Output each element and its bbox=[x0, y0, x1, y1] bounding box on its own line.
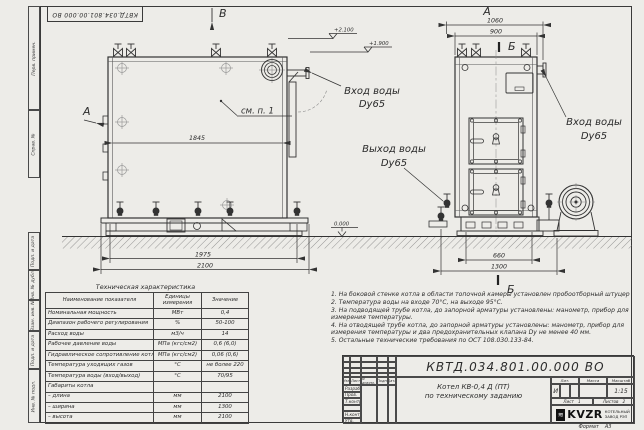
outlet-text: Выход воды bbox=[362, 144, 426, 155]
spec-unit bbox=[154, 382, 202, 392]
dim-1845-label: 1845 bbox=[189, 135, 205, 142]
inlet-dn: Dy65 bbox=[359, 99, 385, 110]
scale-header: Масштаб bbox=[607, 377, 635, 384]
lit-cell-3 bbox=[570, 384, 579, 398]
elev-plus2100: +2.100 bbox=[334, 28, 354, 34]
inlet-dn: Dy65 bbox=[581, 131, 607, 142]
outlet-label: Выход воды Dy65 bbox=[362, 144, 443, 201]
spec-value: 2100 bbox=[202, 392, 249, 402]
dim-1300-label: 1300 bbox=[491, 264, 507, 271]
spec-unit: м3/ч bbox=[154, 329, 202, 339]
revision-grid-line bbox=[343, 367, 396, 369]
drain-valve bbox=[227, 202, 234, 216]
spec-row: Температура уходящих газов°Сне более 220 bbox=[46, 361, 249, 371]
spec-col-header: Значение bbox=[202, 293, 249, 309]
sheets-value: 2 bbox=[622, 399, 625, 404]
spec-name: – ширина bbox=[46, 402, 154, 412]
dim-900-label: 900 bbox=[490, 29, 502, 36]
col-podp: Подп. bbox=[377, 377, 388, 385]
company-name: КОТЕЛЬНЫЙ ЗАВОД РЭП bbox=[605, 410, 630, 419]
spec-value: 1300 bbox=[202, 402, 249, 412]
spec-value: 0,4 bbox=[202, 309, 249, 319]
company-line2: ЗАВОД РЭП bbox=[605, 414, 628, 419]
inlet-text: Вход воды bbox=[344, 86, 400, 97]
top-valve bbox=[268, 44, 277, 57]
sheet-label: Лист bbox=[563, 399, 574, 404]
spec-name: Расход воды bbox=[46, 329, 154, 339]
note-4: 4. На отводящей трубе котла, до запорной… bbox=[331, 323, 634, 337]
spec-value: 0,6 (6,0) bbox=[202, 340, 249, 350]
spec-row: Температура воды (вход/выход)°С70/95 bbox=[46, 371, 249, 381]
spec-table-block: Техническая характеристика Наименование … bbox=[45, 283, 246, 424]
inlet-label-front: Вход воды Dy65 bbox=[546, 77, 622, 142]
spec-unit: мм bbox=[154, 402, 202, 412]
lower-door bbox=[469, 169, 525, 215]
note-1: 1. На боковой стенке котла в области топ… bbox=[331, 292, 634, 299]
technical-notes: 1. На боковой стенке котла в области топ… bbox=[331, 292, 634, 346]
spec-unit: °С bbox=[154, 361, 202, 371]
sig-data-col bbox=[388, 385, 396, 424]
spec-name: Рабочее давление воды bbox=[46, 340, 154, 350]
outlet-dn: Dy65 bbox=[381, 158, 407, 169]
spec-row: Номинальная мощностьМВт0,4 bbox=[46, 309, 249, 319]
burner-flange bbox=[259, 57, 285, 83]
water-inlet-pipe bbox=[287, 68, 327, 158]
kvzr-logo-text: KVZR bbox=[567, 408, 602, 421]
lit-value: И bbox=[551, 384, 560, 398]
ground-hatching bbox=[62, 237, 632, 249]
drawing-sheet: Перв. примен. Справ. № Подп. и дата Инв.… bbox=[0, 0, 644, 430]
dim-2100-label: 2100 bbox=[197, 263, 213, 270]
spec-unit: % bbox=[154, 319, 202, 329]
drain-valve bbox=[438, 207, 445, 221]
sheets-cell: Листов 2 bbox=[593, 398, 635, 405]
elevation-marks bbox=[288, 34, 392, 237]
inlet-text: Вход воды bbox=[566, 117, 622, 128]
note-2: 2. Температура воды на входе 70°С, на вы… bbox=[331, 300, 634, 307]
drain-valve bbox=[153, 202, 160, 216]
section-letter-b-top: Б bbox=[508, 40, 516, 53]
product-line1: Котел КВ-0,4 Д (ПТ) bbox=[437, 383, 510, 392]
spec-name: Диапазон рабочего регулирования bbox=[46, 319, 154, 329]
spec-name: Габариты котла bbox=[46, 382, 154, 392]
sig-utv: Утв. bbox=[343, 418, 361, 425]
spec-value: 50-100 bbox=[202, 319, 249, 329]
spec-table-title: Техническая характеристика bbox=[45, 283, 246, 292]
dim-1060-label: 1060 bbox=[487, 18, 503, 25]
format-strip: Формат А3 bbox=[545, 424, 644, 430]
spec-value: 0,06 (0,6) bbox=[202, 350, 249, 360]
view-letter-v: В bbox=[219, 7, 227, 20]
front-inlet-flange bbox=[537, 63, 546, 77]
col-data: Дата bbox=[388, 377, 396, 385]
revision-grid-line bbox=[343, 361, 396, 363]
view-letter-a-front: А bbox=[482, 5, 491, 18]
spec-value bbox=[202, 382, 249, 392]
top-valve bbox=[127, 44, 136, 57]
spec-value: не более 220 bbox=[202, 361, 249, 371]
note-3: 3. На подводящей трубе котла, до запорно… bbox=[331, 308, 634, 322]
drain-valve bbox=[294, 202, 301, 216]
spec-value: 2100 bbox=[202, 413, 249, 423]
drain-valve bbox=[117, 202, 124, 216]
format-value: А3 bbox=[605, 424, 612, 430]
spec-name: Номинальная мощность bbox=[46, 309, 154, 319]
see-note-callout: см. п. 1 bbox=[220, 100, 292, 117]
spec-name: Температура воды (вход/выход) bbox=[46, 371, 154, 381]
spec-name: Гидравлическое сопротивление котла bbox=[46, 350, 154, 360]
spec-unit: МПа (кгс/см2) bbox=[154, 340, 202, 350]
top-valve bbox=[114, 44, 123, 57]
sheet-cell: Лист 1 bbox=[551, 398, 593, 405]
spec-value: 14 bbox=[202, 329, 249, 339]
format-label: Формат bbox=[579, 424, 599, 430]
title-block: Изм Лист N докум. Подп. Дата Разраб. Про… bbox=[342, 355, 634, 423]
lit-cell-2 bbox=[560, 384, 569, 398]
inlet-label-side: Вход воды Dy65 bbox=[312, 73, 400, 110]
upper-door bbox=[469, 118, 525, 164]
spec-name: – длина bbox=[46, 392, 154, 402]
boiler-front-view bbox=[429, 44, 598, 236]
elev-zero: 0.000 bbox=[334, 222, 350, 228]
spec-row: – длинамм2100 bbox=[46, 392, 249, 402]
blower-fan bbox=[537, 183, 598, 236]
spec-row: Расход водым3/ч14 bbox=[46, 329, 249, 339]
spec-row: – ширинамм1300 bbox=[46, 402, 249, 412]
revision-grid-line bbox=[343, 372, 396, 374]
sheets-label: Листов bbox=[603, 399, 619, 404]
spec-unit: мм bbox=[154, 392, 202, 402]
access-panel bbox=[506, 73, 533, 93]
spec-value: 70/95 bbox=[202, 371, 249, 381]
base-frame-front bbox=[457, 217, 543, 236]
view-letter-a-side: А bbox=[82, 105, 91, 118]
spec-unit: МВт bbox=[154, 309, 202, 319]
dim-660-label: 660 bbox=[493, 253, 505, 260]
note-5: 5. Остальные технические требования по О… bbox=[331, 338, 634, 345]
doc-number: КВТД.034.801.00.000 ВО bbox=[396, 356, 635, 377]
spec-name: Температура уходящих газов bbox=[46, 361, 154, 371]
see-note-label: см. п. 1 bbox=[241, 107, 274, 117]
spec-row: – высотамм2100 bbox=[46, 413, 249, 423]
col-izm: Изм bbox=[343, 377, 350, 385]
scale-value: 1:15 bbox=[607, 384, 635, 398]
boiler-side-view bbox=[101, 44, 327, 236]
dim-1975-label: 1975 bbox=[195, 252, 211, 259]
spec-name: – высота bbox=[46, 413, 154, 423]
spec-row: Рабочее давление водыМПа (кгс/см2)0,6 (6… bbox=[46, 340, 249, 350]
top-valve bbox=[212, 44, 221, 57]
spec-unit: МПа (кгс/см2) bbox=[154, 350, 202, 360]
col-ndokum: N докум. bbox=[361, 377, 377, 385]
spec-unit: °С bbox=[154, 371, 202, 381]
spec-unit: мм bbox=[154, 413, 202, 423]
spec-row: Диапазон рабочего регулирования%50-100 bbox=[46, 319, 249, 329]
mass-header: Масса bbox=[579, 377, 607, 384]
spec-row: Гидравлическое сопротивление котлаМПа (к… bbox=[46, 350, 249, 360]
spec-col-header: Единицы измерения bbox=[154, 293, 202, 309]
product-name: Котел КВ-0,4 Д (ПТ) по техническому зада… bbox=[396, 377, 551, 424]
drain-valve bbox=[444, 194, 451, 208]
elev-plus1900: +1.900 bbox=[369, 41, 389, 47]
product-line2: по техническому заданию bbox=[425, 392, 522, 401]
drain-valve bbox=[546, 194, 553, 208]
drain-valve bbox=[195, 202, 202, 216]
company-cell: ≋ KVZR КОТЕЛЬНЫЙ ЗАВОД РЭП bbox=[551, 405, 635, 424]
lit-header: Лит. bbox=[551, 377, 579, 384]
sheet-value: 1 bbox=[578, 399, 581, 404]
sig-name-col bbox=[361, 385, 377, 424]
base-frame-side bbox=[101, 218, 308, 236]
spec-row: Габариты котла bbox=[46, 382, 249, 392]
spec-col-header: Наименование показателя bbox=[46, 293, 154, 309]
mass-value bbox=[579, 384, 607, 398]
sig-podp-col bbox=[377, 385, 388, 424]
col-list: Лист bbox=[350, 377, 361, 385]
spec-table: Наименование показателя Единицы измерени… bbox=[45, 292, 249, 424]
kvzr-logo-icon: ≋ bbox=[556, 409, 565, 421]
